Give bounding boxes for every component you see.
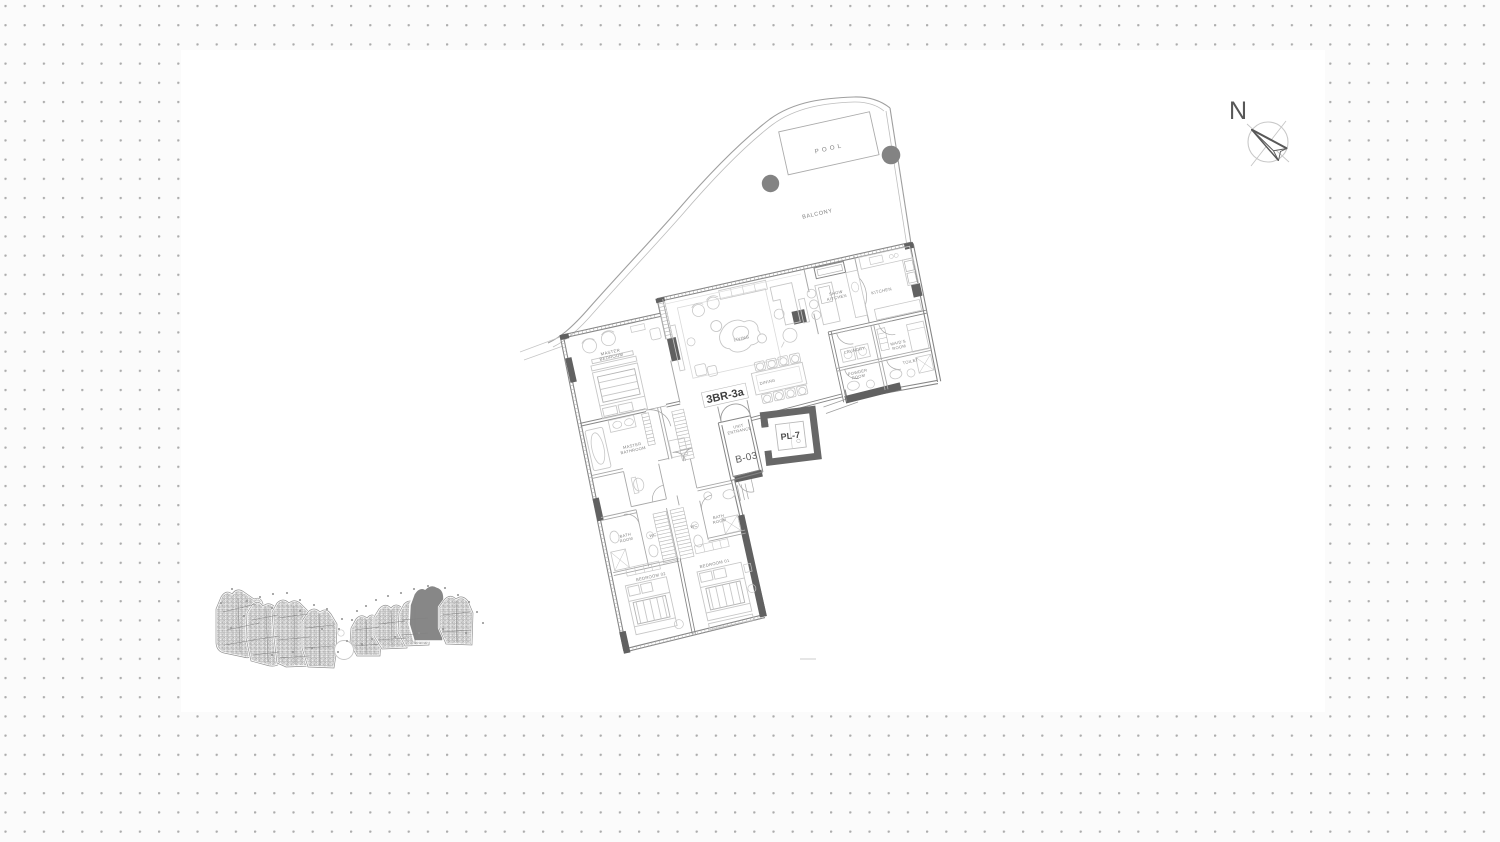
svg-text:N: N [1229, 97, 1247, 125]
